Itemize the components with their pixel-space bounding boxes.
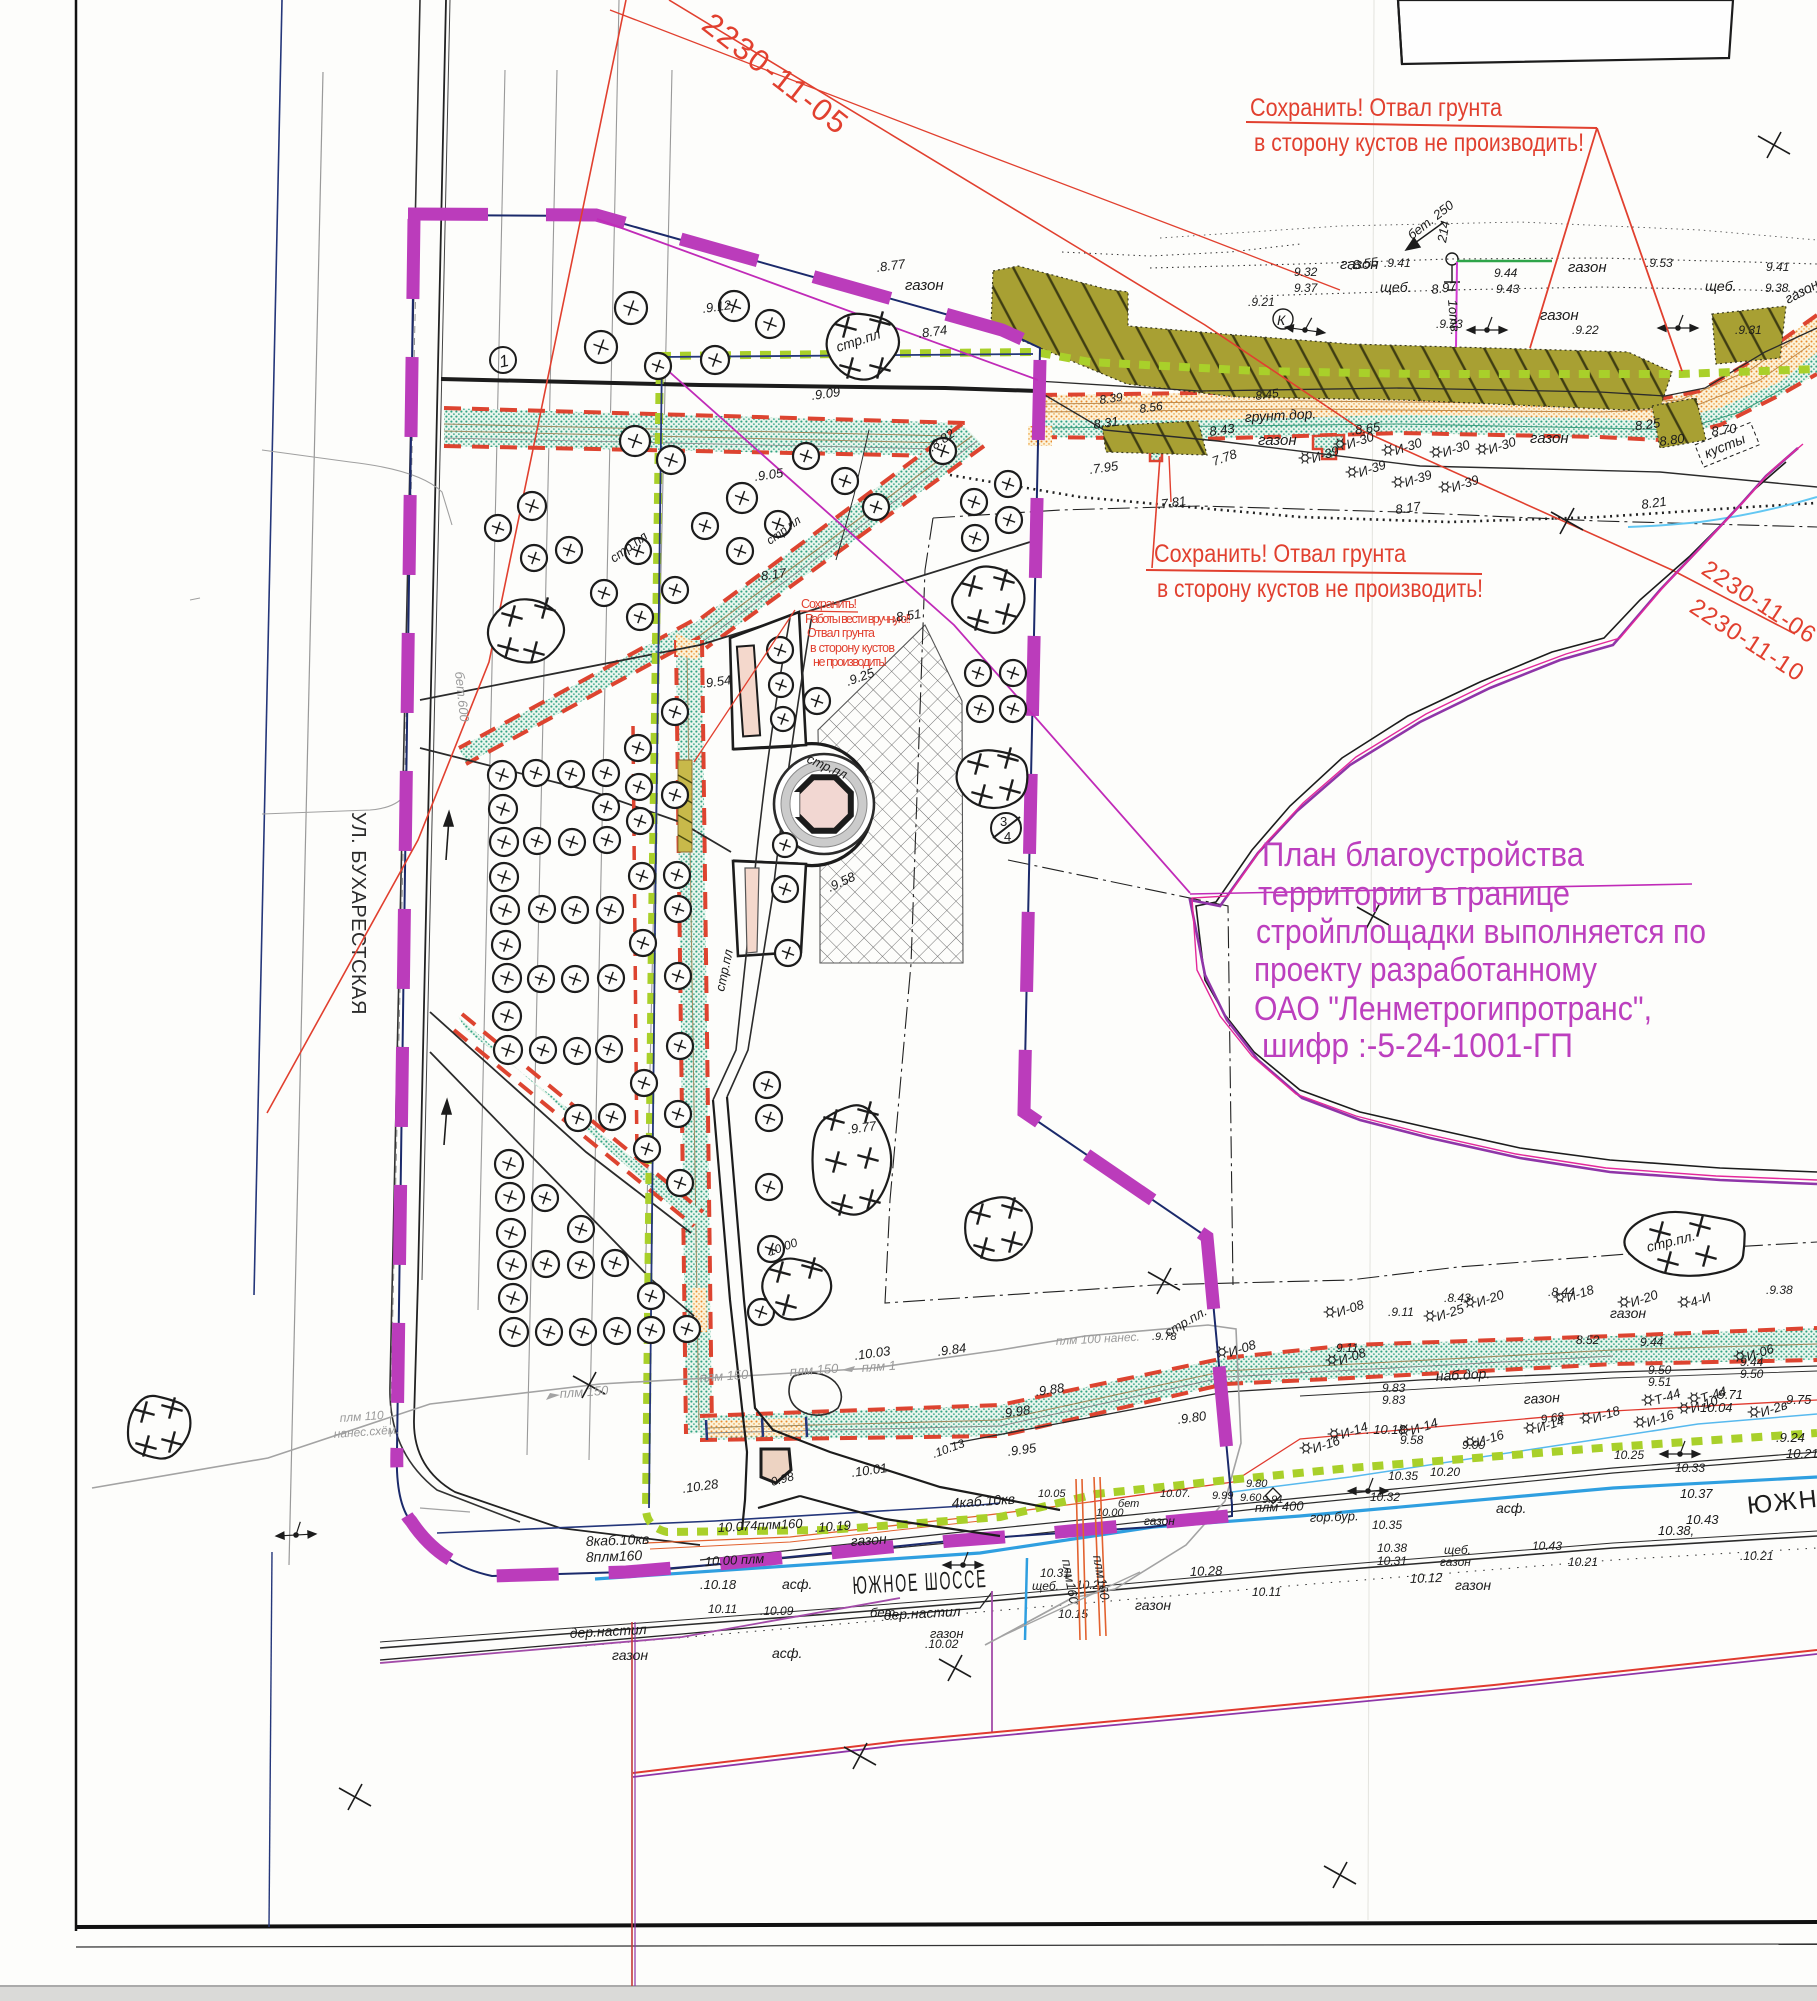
svg-text:10.43: 10.43 <box>1532 1539 1562 1553</box>
svg-text:наб.дор.: наб.дор. <box>1435 1365 1490 1384</box>
svg-text:9.51: 9.51 <box>1648 1375 1671 1389</box>
svg-text:газон: газон <box>905 277 944 294</box>
svg-text:Сохранить! Отвал грунта: Сохранить! Отвал грунта <box>1154 540 1406 568</box>
svg-text:газон: газон <box>850 1530 887 1548</box>
svg-text:ОАО "Ленметрогипротранс",: ОАО "Ленметрогипротранс", <box>1254 990 1652 1028</box>
svg-text:.9.41: .9.41 <box>1384 256 1411 270</box>
svg-text:проекту разработанному: проекту разработанному <box>1254 951 1597 989</box>
svg-text:гор.бур.: гор.бур. <box>1310 1508 1359 1525</box>
svg-text:щеб.: щеб. <box>1705 278 1736 294</box>
svg-text:9.50: 9.50 <box>1740 1367 1764 1381</box>
svg-text:10.21: 10.21 <box>1568 1555 1598 1569</box>
svg-text:10.04: 10.04 <box>1700 1400 1733 1415</box>
svg-text:газон: газон <box>1523 1389 1560 1407</box>
svg-text:3: 3 <box>1000 814 1007 829</box>
svg-text:9.99: 9.99 <box>1212 1490 1233 1502</box>
svg-text:бет.: бет. <box>870 1605 899 1620</box>
svg-text:щеб.: щеб. <box>1380 279 1411 295</box>
svg-text:.9.38: .9.38 <box>1766 1283 1793 1297</box>
svg-text:10.31: 10.31 <box>1377 1554 1407 1568</box>
svg-text:газон: газон <box>1540 307 1579 324</box>
svg-text:газон: газон <box>930 1626 964 1641</box>
svg-text:9.44: 9.44 <box>1640 1335 1664 1349</box>
svg-text:.9.78: .9.78 <box>1152 1331 1177 1343</box>
svg-text:10.12: 10.12 <box>1410 1570 1444 1586</box>
svg-text:10.11: 10.11 <box>1252 1585 1281 1599</box>
svg-text:9.83: 9.83 <box>1382 1393 1406 1407</box>
svg-text:9.11: 9.11 <box>1336 1341 1358 1355</box>
svg-text:газон: газон <box>1610 1305 1646 1321</box>
svg-text:стройплощадки выполняется по: стройплощадки выполняется по <box>1256 913 1706 951</box>
svg-text:10.38: 10.38 <box>1377 1541 1407 1555</box>
svg-text:10.33: 10.33 <box>1675 1461 1705 1475</box>
svg-text:.9.24: .9.24 <box>1776 1430 1805 1445</box>
svg-text:9.37: 9.37 <box>1294 281 1319 295</box>
svg-text:9.60: 9.60 <box>1240 1492 1262 1504</box>
svg-text:.9.23: .9.23 <box>1436 317 1463 331</box>
svg-text:К: К <box>1277 312 1286 328</box>
svg-text:10.35: 10.35 <box>1372 1518 1402 1532</box>
svg-text:в сторону кустов: в сторону кустов <box>810 641 895 655</box>
svg-text:.9.21: .9.21 <box>1248 295 1275 309</box>
svg-text:9.80: 9.80 <box>1246 1478 1268 1490</box>
svg-text:.10.19: .10.19 <box>814 1518 851 1535</box>
svg-text:9.41: 9.41 <box>1766 260 1789 274</box>
svg-text:.9.71: .9.71 <box>1714 1387 1743 1402</box>
svg-text:в сторону кустов не производит: в сторону кустов не производить! <box>1157 575 1483 603</box>
svg-text:Отвал грунта: Отвал грунта <box>807 626 875 640</box>
svg-text:9.38: 9.38 <box>1765 281 1789 295</box>
svg-text:. 10.18: . 10.18 <box>1366 1422 1407 1437</box>
svg-text:.9.31: .9.31 <box>1735 323 1762 337</box>
svg-text:газон: газон <box>1530 430 1569 447</box>
svg-text:УЛ. БУХАРЕСТСКАЯ: УЛ. БУХАРЕСТСКАЯ <box>347 812 369 1015</box>
svg-text:газон: газон <box>612 1647 648 1663</box>
svg-text:10.38,: 10.38, <box>1658 1523 1694 1538</box>
svg-text:газон: газон <box>1135 1597 1171 1613</box>
svg-text:.10.09: .10.09 <box>760 1604 794 1618</box>
svg-text:асф.: асф. <box>1496 1500 1526 1516</box>
svg-text:4: 4 <box>1004 829 1011 844</box>
svg-text:газон: газон <box>1144 1514 1175 1528</box>
svg-text:10.37: 10.37 <box>1680 1486 1713 1501</box>
svg-text:8плм160: 8плм160 <box>586 1547 643 1565</box>
svg-text:в сторону кустов не производит: в сторону кустов не производить! <box>1254 129 1584 157</box>
svg-text:.9.11: .9.11 <box>1388 1305 1414 1319</box>
svg-text:газон: газон <box>1455 1577 1491 1593</box>
svg-text:9.75: 9.75 <box>1786 1392 1812 1407</box>
svg-text:территории в границе: территории в границе <box>1258 875 1570 913</box>
svg-text:10.07.: 10.07. <box>1160 1488 1191 1500</box>
svg-text:.9.22: .9.22 <box>1572 323 1599 337</box>
svg-text:.10.21: .10.21 <box>1740 1549 1773 1563</box>
svg-text:газон: газон <box>1440 1555 1471 1569</box>
svg-text:плм 1: плм 1 <box>861 1358 896 1375</box>
svg-text:9.32: 9.32 <box>1294 265 1318 279</box>
svg-text:10.25: 10.25 <box>1614 1448 1644 1462</box>
svg-text:щеб.: щеб. <box>1032 1579 1059 1593</box>
svg-text:9.44: 9.44 <box>1494 266 1518 280</box>
svg-text:.9.53: .9.53 <box>1646 256 1673 270</box>
svg-text:Сохранить!: Сохранить! <box>801 597 857 611</box>
svg-text:10.28: 10.28 <box>1190 1563 1224 1579</box>
svg-text:10.21: 10.21 <box>1786 1446 1817 1461</box>
svg-text:асф.: асф. <box>772 1645 802 1661</box>
svg-text:асф.: асф. <box>782 1576 812 1592</box>
svg-text:10.35: 10.35 <box>1388 1469 1418 1483</box>
svg-text:.10.18: .10.18 <box>700 1577 737 1592</box>
svg-text:10.00: 10.00 <box>1096 1507 1124 1519</box>
svg-text:10.05: 10.05 <box>1038 1488 1066 1500</box>
svg-text:шифр :-5-24-1001-ГП: шифр :-5-24-1001-ГП <box>1262 1027 1573 1065</box>
svg-text:Сохранить! Отвал грунта: Сохранить! Отвал грунта <box>1250 94 1502 122</box>
svg-text:План благоустройства: План благоустройства <box>1262 836 1584 874</box>
svg-text:10.11: 10.11 <box>708 1602 737 1616</box>
svg-text:10.15: 10.15 <box>1058 1607 1088 1621</box>
svg-text:9.43: 9.43 <box>1496 282 1520 296</box>
svg-text:газон: газон <box>1258 432 1297 449</box>
svg-text:не производить!: не производить! <box>813 655 887 669</box>
svg-text:10.32: 10.32 <box>1370 1490 1400 1504</box>
svg-text:8.52: 8.52 <box>1576 1333 1600 1347</box>
svg-text:газон: газон <box>1568 259 1607 276</box>
svg-text:10.00 плм: 10.00 плм <box>704 1551 764 1569</box>
svg-text:10.20: 10.20 <box>1430 1465 1460 1479</box>
